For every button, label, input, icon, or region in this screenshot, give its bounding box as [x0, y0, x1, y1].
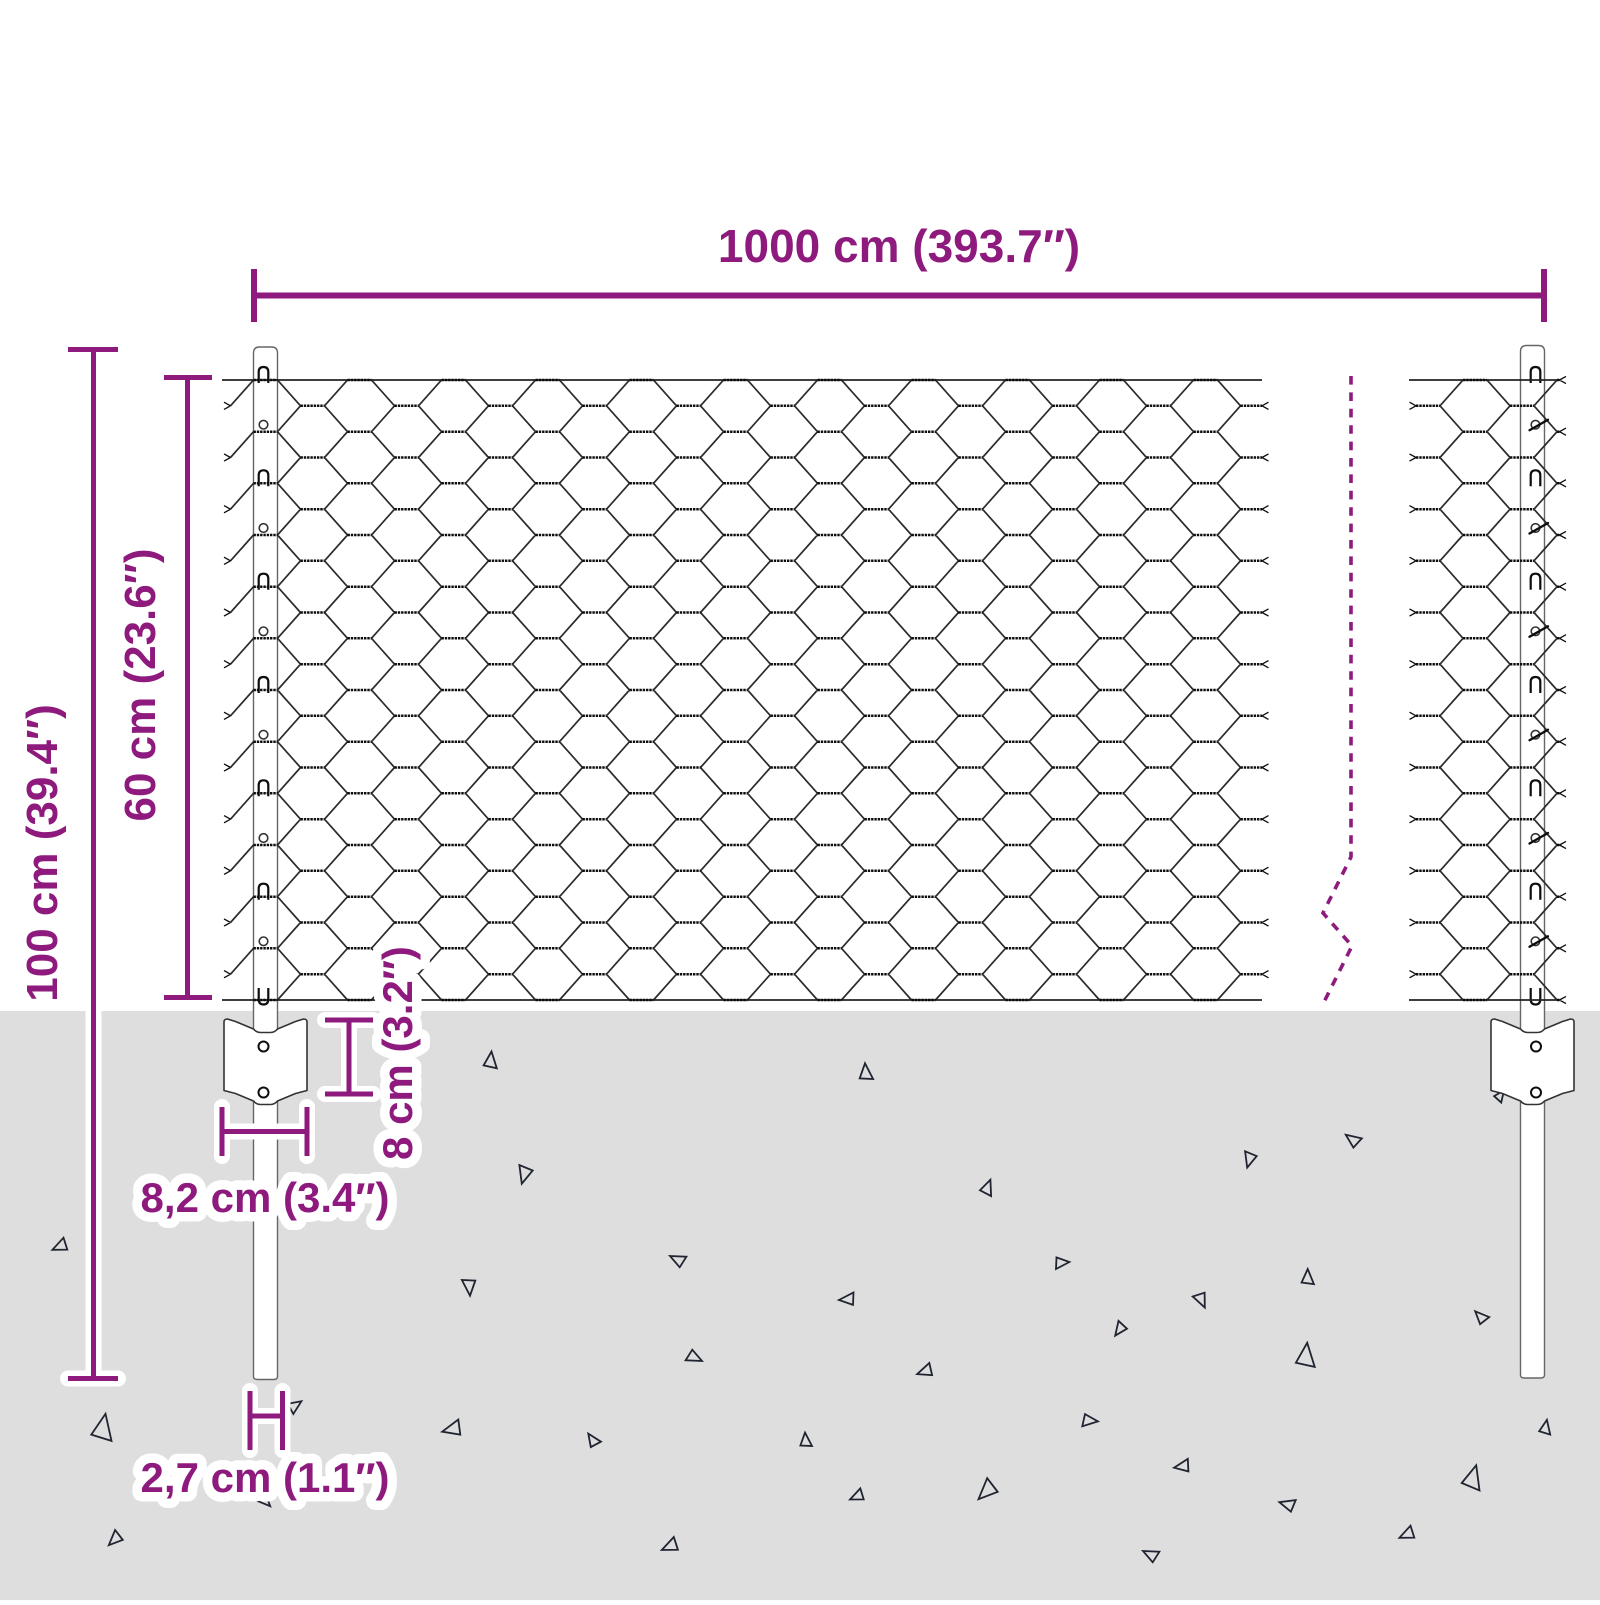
- svg-text:100 cm (39.4″): 100 cm (39.4″): [18, 704, 67, 1001]
- svg-text:60 cm (23.6″): 60 cm (23.6″): [116, 548, 165, 821]
- svg-text:8,2 cm (3.4″): 8,2 cm (3.4″): [141, 1174, 390, 1221]
- svg-text:8 cm (3.2″): 8 cm (3.2″): [374, 946, 421, 1160]
- svg-text:2,7 cm (1.1″): 2,7 cm (1.1″): [141, 1454, 390, 1501]
- svg-text:1000 cm (393.7″): 1000 cm (393.7″): [718, 220, 1080, 272]
